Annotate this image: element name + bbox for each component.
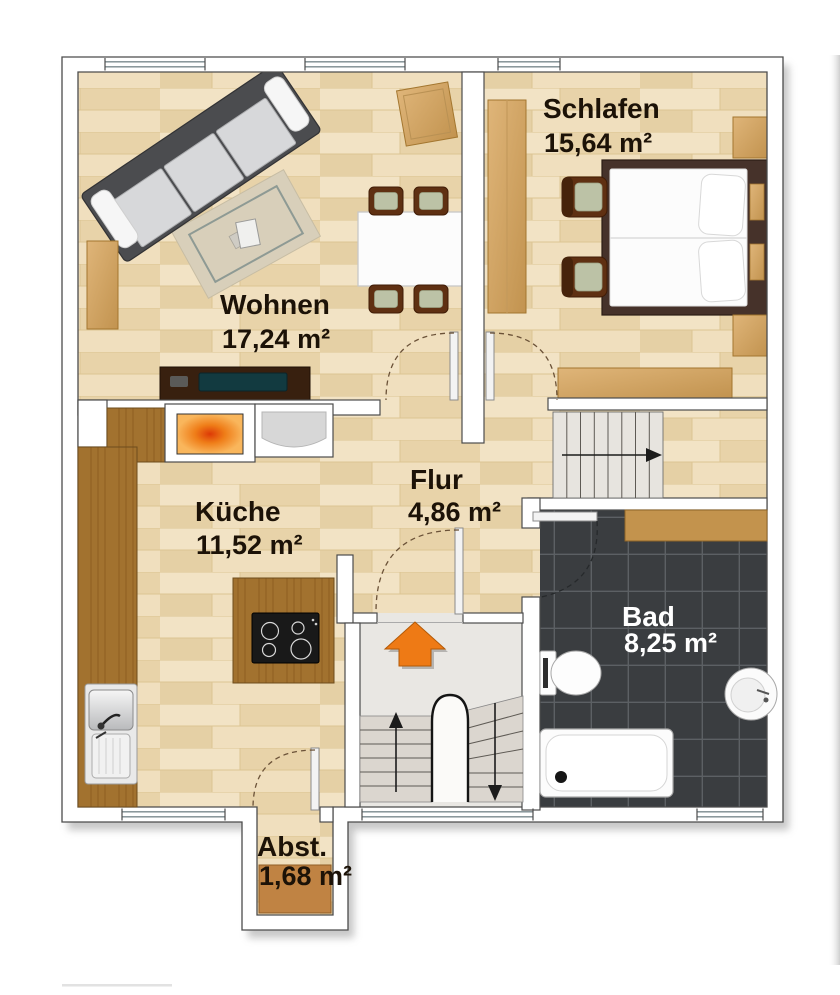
room-label-wohnen: Wohnen — [220, 289, 330, 320]
dining-table-icon — [358, 212, 462, 286]
side-table-icon — [397, 82, 458, 146]
door-leaf — [455, 528, 463, 614]
room-area-flur: 4,86 m² — [408, 497, 501, 527]
wall-segment — [548, 398, 767, 410]
bath-shelf-icon — [625, 510, 767, 541]
room-label-abst: Abst. — [257, 831, 327, 862]
kitchen-appliance-icon — [255, 404, 333, 457]
floorplan-page: Wohnen 17,24 m² Schlafen 15,64 m² Küche … — [0, 0, 840, 995]
door-leaf — [533, 512, 597, 521]
nightstand-icon — [733, 315, 767, 356]
dining-chair-icon — [414, 187, 448, 215]
door-leaf — [311, 748, 319, 810]
room-area-abst: 1,68 m² — [259, 861, 352, 891]
wardrobe-icon — [488, 100, 526, 313]
dresser-icon — [558, 368, 732, 398]
page-edge-mark — [62, 984, 172, 987]
wall-segment — [78, 400, 107, 447]
wall-segment — [320, 807, 333, 822]
door-leaf — [486, 332, 494, 400]
dining-chair-icon — [369, 187, 403, 215]
dining-chair-icon — [369, 285, 403, 313]
toilet-icon — [540, 651, 601, 695]
wall-segment — [522, 597, 540, 810]
armchair-icon — [562, 257, 607, 297]
room-area-schlafen: 15,64 m² — [544, 128, 652, 158]
stair-newel — [432, 695, 468, 802]
cooking-island-icon — [233, 578, 334, 683]
washbasin-icon — [725, 668, 777, 720]
wall-segment — [337, 555, 353, 623]
room-area-bad: 8,25 m² — [624, 628, 717, 658]
armchair-icon — [562, 177, 607, 217]
sideboard-icon — [87, 241, 118, 329]
fireplace-stove-icon — [165, 404, 255, 462]
tv-lowboard-icon — [160, 367, 310, 403]
room-area-kueche: 11,52 m² — [196, 530, 303, 560]
dining-chair-icon — [414, 285, 448, 313]
floorplan-drawing: Wohnen 17,24 m² Schlafen 15,64 m² Küche … — [0, 0, 840, 995]
wall-segment — [345, 623, 360, 807]
room-area-wohnen: 17,24 m² — [222, 324, 330, 354]
wall-segment — [463, 613, 523, 623]
upper-staircase — [553, 412, 663, 498]
room-label-schlafen: Schlafen — [543, 93, 660, 124]
wall-segment — [528, 498, 767, 510]
kitchen-sink-icon — [85, 684, 137, 784]
room-label-kueche: Küche — [195, 496, 281, 527]
nightstand-icon — [733, 117, 767, 158]
room-label-flur: Flur — [410, 464, 463, 495]
page-edge-shade — [828, 55, 840, 965]
wall-segment — [462, 72, 484, 443]
double-bed-icon — [602, 160, 767, 315]
door-leaf — [450, 332, 458, 400]
bathtub-icon — [540, 729, 673, 797]
